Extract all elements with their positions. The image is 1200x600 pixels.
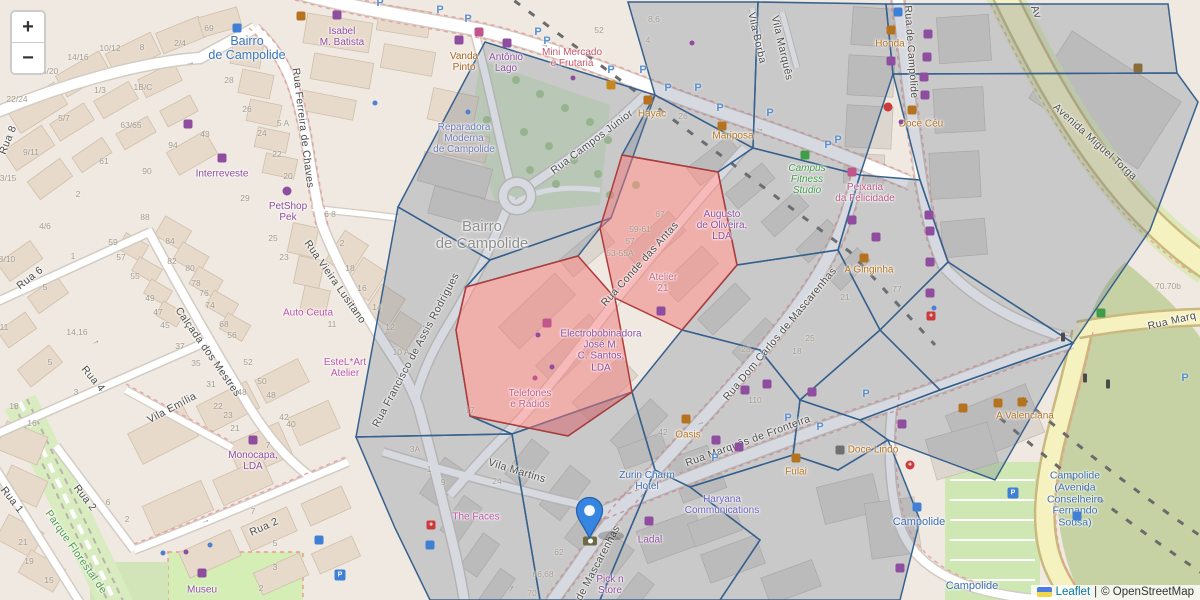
street-label: Vila Marquês — [769, 15, 796, 82]
parking-icon: P — [607, 64, 614, 76]
map-canvas[interactable]: Rua 8Rua Ferreira de ChavesRua Vieira Lu… — [0, 0, 1200, 600]
cutlery-icon — [682, 415, 691, 424]
house-number: 25 — [805, 333, 814, 343]
traffic-light-icon — [1061, 333, 1065, 342]
shop-icon — [741, 386, 750, 395]
fitness-runner-icon — [801, 151, 810, 160]
house-number: 82 — [167, 256, 176, 266]
house-number: 1B/C — [134, 82, 153, 92]
poi-dot — [533, 376, 538, 381]
traffic-light-icon — [1083, 374, 1087, 383]
attribution-separator: | — [1094, 586, 1097, 598]
cutlery-icon — [994, 399, 1003, 408]
house-number: 76 — [199, 288, 208, 298]
house-number: 19 — [24, 556, 33, 566]
house-number: 28 — [224, 75, 233, 85]
house-number: 26 — [242, 104, 251, 114]
bakery-icon — [872, 233, 881, 242]
shop-icon — [923, 53, 932, 62]
map-marker[interactable] — [575, 496, 633, 545]
street-label: Vila Martins — [487, 457, 547, 486]
house-number: 17 — [465, 405, 474, 415]
oneway-arrow: → — [694, 416, 706, 428]
luggage-icon — [926, 289, 935, 298]
poi-label: HaryanaCommunications — [685, 494, 759, 516]
parking-square-icon: P — [335, 570, 346, 581]
house-number: 1/3 — [94, 85, 106, 95]
clothes-icon — [718, 122, 727, 131]
house-number: 4/6 — [39, 221, 51, 231]
street-label: Vila Borba — [745, 11, 768, 65]
parking-icon: P — [543, 35, 550, 47]
house-number: 2 — [125, 514, 130, 524]
crossing-dot — [208, 543, 213, 548]
street-label: Rua 6 — [14, 264, 45, 292]
oneway-arrow: → — [539, 38, 550, 50]
parking-icon: P — [639, 64, 646, 76]
house-number: 8,6 — [648, 14, 660, 24]
poi-label: Atelier21 — [649, 272, 677, 294]
house-number: 48 — [237, 387, 246, 397]
crossing-dot — [161, 551, 166, 556]
parking-icon: P — [824, 139, 831, 151]
poi-label: ElectrobobinadoraJosé M.C. Santos,LDA — [560, 329, 641, 374]
house-number: 84 — [165, 236, 174, 246]
house-number: 45 — [160, 320, 169, 330]
house-number: 31 — [206, 379, 215, 389]
cocktail-icon — [475, 28, 484, 37]
oneway-arrow: → — [754, 122, 766, 134]
poi-label: Bairrode Campolide — [208, 34, 285, 62]
house-number: 3 — [74, 387, 79, 397]
parking-icon: P — [1181, 372, 1188, 384]
house-number: 5/7 — [58, 113, 70, 123]
house-number: 3/15 — [0, 173, 16, 183]
parking-icon: P — [534, 26, 541, 38]
house-number: 28 — [741, 344, 750, 354]
street-label: Rua 4 — [79, 364, 107, 395]
crown-icon — [184, 120, 193, 129]
poi-label: Peixariada Felicidade — [835, 182, 894, 204]
house-number: 6 — [106, 497, 111, 507]
poi-label: Campolide(AvenidaConselheiroFernandoSous… — [1047, 471, 1103, 530]
parking-icon: P — [376, 0, 383, 9]
house-number: 49 — [145, 293, 154, 303]
house-number: 22 — [272, 149, 281, 159]
parking-icon: P — [664, 82, 671, 94]
zoom-in-button[interactable]: + — [12, 12, 44, 43]
house-number: 77 — [892, 284, 901, 294]
poi-label: Telefonese Rádios — [509, 388, 552, 410]
parking-icon: P — [436, 4, 443, 16]
house-number: 9/11 — [23, 147, 39, 157]
osm-attribution: © OpenStreetMap — [1101, 586, 1194, 598]
house-number: 52 — [594, 25, 603, 35]
poi-dot — [571, 76, 576, 81]
car-shop-icon — [657, 307, 666, 316]
house-number: 23 — [279, 252, 288, 262]
poi-label: ReparadoraModernade Campolide — [433, 122, 495, 156]
house-number: 63/65 — [120, 120, 141, 130]
house-number: 42 — [658, 427, 667, 437]
crossing-dot — [466, 110, 471, 115]
house-number: 69 — [204, 23, 213, 33]
poi-dot — [536, 333, 541, 338]
poi-label: EsteL*ArtAtelier — [324, 357, 366, 379]
train-station-icon — [913, 503, 922, 512]
cart-icon — [924, 30, 933, 39]
house-number: 29 — [240, 193, 249, 203]
parking-icon: P — [694, 82, 701, 94]
crossing-dot — [184, 550, 189, 555]
parking-icon: P — [862, 388, 869, 400]
house-number: 16 — [27, 418, 36, 428]
parking-icon: P — [766, 107, 773, 119]
house-number: 90 — [142, 166, 151, 176]
poi-label: PetShopPek — [269, 201, 307, 223]
poi-label: Mini Mercadoe Frutaria — [542, 47, 602, 69]
street-label: Rua Marquês de Fronteira — [684, 413, 812, 469]
church-icon — [896, 564, 905, 573]
street-label: Rua 8 — [0, 124, 19, 156]
house-number: 6 8 — [324, 209, 336, 219]
house-number: 7 — [251, 506, 256, 516]
poi-label: Doce Céu — [899, 118, 943, 129]
street-label: Vila Emília — [145, 390, 198, 426]
house-number: 57 — [116, 252, 125, 262]
house-number: 110 — [748, 395, 762, 405]
florist-icon — [921, 91, 930, 100]
house-number: 14 — [372, 302, 381, 312]
pedestrian-icon — [1097, 309, 1106, 318]
bus-stop-icon — [894, 8, 903, 17]
cafe-cup-icon — [908, 106, 917, 115]
restaurant-icon — [644, 96, 653, 105]
vet-paw-icon — [884, 103, 893, 112]
house-number: 18 — [345, 263, 354, 273]
ukraine-flag-icon — [1037, 587, 1052, 597]
street-label: Rua 1 — [0, 484, 26, 515]
poi-dot — [899, 120, 904, 125]
house-number: 16 — [357, 283, 366, 293]
poi-label: AntônioLago — [489, 52, 523, 74]
shop-icon — [808, 388, 817, 397]
house-number: 80 — [185, 263, 194, 273]
oneway-arrow: → — [185, 56, 196, 68]
optician-icon — [898, 420, 907, 429]
poi-label: Hayac — [638, 108, 666, 119]
house-number: 1 — [71, 251, 76, 261]
house-number: 3A — [410, 444, 420, 454]
house-number: 3 — [273, 562, 278, 572]
house-number: 68 — [219, 319, 228, 329]
poi-label: Interreveste — [196, 168, 249, 179]
bus-stop-icon — [426, 541, 435, 550]
house-number: 10 A — [392, 347, 409, 357]
poi-label: Museu — [187, 584, 217, 595]
house-number: 42 — [279, 412, 288, 422]
bus-stop-icon — [233, 24, 242, 33]
jewelry-icon — [503, 39, 512, 48]
cafe-cup-icon — [297, 12, 306, 21]
house-number: 5 — [43, 282, 48, 292]
house-number: 8 — [140, 42, 145, 52]
poi-label: Pick nStore — [596, 574, 623, 596]
house-number: 9 — [441, 477, 446, 487]
motorcycle-icon — [887, 26, 896, 35]
house-number: 11 — [0, 322, 8, 332]
house-number: 78 — [191, 278, 200, 288]
house-number: 61 — [99, 156, 108, 166]
house-number: 50 — [257, 376, 266, 386]
house-number: 21 — [18, 537, 27, 547]
street-label: Rua 2 — [71, 482, 99, 513]
luggage-icon — [926, 227, 935, 236]
street-label: Rua Vieira Lusitano — [302, 238, 369, 326]
crossing-dot — [373, 101, 378, 106]
people-icon — [218, 154, 227, 163]
house-number: 5 A — [277, 118, 289, 128]
house-number: 4 — [646, 35, 651, 45]
street-label: Rua 2 — [248, 515, 280, 538]
parking-icon: P — [716, 102, 723, 114]
poi-label: IsabelM. Batista — [320, 26, 364, 48]
house-number: 59 — [108, 237, 117, 247]
street-label: Calçada dos Mestres — [173, 305, 244, 399]
poi-label: Campolide — [946, 580, 999, 592]
crown-icon — [925, 211, 934, 220]
poi-label: Mariposa — [712, 130, 753, 141]
poi-label: Augustode Oliveira,LDA — [697, 209, 748, 243]
leaflet-link[interactable]: Leaflet — [1056, 586, 1091, 598]
bike-parking-icon — [1073, 512, 1082, 521]
house-number: 2 — [76, 189, 81, 199]
paw-icon — [283, 187, 292, 196]
parking-icon: P — [711, 452, 718, 464]
scissors-icon — [920, 73, 929, 82]
house-number: 47 — [153, 307, 162, 317]
zoom-control: + − — [10, 10, 46, 75]
house-number: 22/24 — [6, 94, 27, 104]
house-number: 25 — [268, 233, 277, 243]
house-number: 21 — [230, 423, 239, 433]
fish-icon — [848, 168, 857, 177]
taxi-icon — [836, 446, 845, 455]
house-number: 5 — [273, 538, 278, 548]
house-number: 35 — [191, 358, 200, 368]
house-number: 15 — [44, 575, 53, 585]
house-number: 48 — [266, 390, 275, 400]
factory-icon — [887, 57, 896, 66]
poi-label: Campolide — [893, 516, 946, 528]
bus-stop-icon — [315, 536, 324, 545]
street-label: Rua Conde das Antas — [599, 219, 681, 309]
shop-icon — [735, 443, 744, 452]
street-label: Rua Campos Júnior — [549, 107, 636, 177]
house-number: 70.70b — [1155, 281, 1181, 291]
poi-label: Oasis — [675, 429, 701, 440]
poi-label: CampusFitnessStudio — [788, 163, 825, 197]
poi-label: VandaPinto — [450, 51, 478, 73]
house-number: 21 — [840, 292, 849, 302]
attribution-bar: Leaflet | © OpenStreetMap — [1031, 585, 1200, 600]
parking-icon: P — [816, 421, 823, 433]
poi-label: Honda — [875, 38, 904, 49]
oneway-arrow: → — [199, 514, 211, 527]
books-icon — [848, 216, 857, 225]
monument-icon — [1134, 64, 1143, 73]
house-number: 62 — [554, 547, 563, 557]
street-label: Rua Ferreira de Chaves — [290, 67, 317, 188]
poi-label: Zurin CharmHotel — [619, 470, 675, 492]
trophy-icon — [959, 404, 968, 413]
street-label: Rua de Campolide — [902, 5, 920, 99]
clothes-icon — [333, 11, 342, 20]
house-number: 20 — [283, 171, 292, 181]
hotel-bed-icon — [543, 319, 552, 328]
house-number: 23 — [223, 410, 232, 420]
street-label: Rua Dom Carlos de Mascarenhas — [721, 265, 839, 403]
house-number: 66,68 — [532, 569, 553, 579]
oneway-arrow: → — [89, 335, 101, 348]
house-number: 22 — [213, 401, 222, 411]
house-number: 24 — [257, 128, 266, 138]
house-number: 56 — [227, 330, 236, 340]
crown-icon — [926, 258, 935, 267]
poi-label: The Faces — [452, 511, 499, 522]
house-number: 18 — [9, 401, 18, 411]
oneway-arrow: → — [504, 582, 517, 594]
street-label: Parque Florestal de — [43, 508, 110, 596]
zoom-out-button[interactable]: − — [12, 43, 44, 73]
house-number: 14,16 — [66, 327, 87, 337]
cafe-cup-icon — [860, 254, 869, 263]
parking-icon: P — [834, 134, 841, 146]
house-number: 88 — [140, 212, 149, 222]
house-number: 59-61 — [629, 224, 651, 234]
basket-icon — [607, 81, 616, 90]
traffic-light-icon — [1106, 380, 1110, 389]
shop-icon — [712, 436, 721, 445]
poi-label: Auto Ceuta — [283, 307, 333, 318]
firstaid-icon: + — [927, 312, 936, 321]
house-number: 5 — [48, 357, 53, 367]
house-number: 14/16 — [67, 52, 88, 62]
house-number: 52 — [243, 357, 252, 367]
house-number: 26 — [678, 111, 687, 121]
parking-icon: P — [784, 412, 791, 424]
museum-icon — [198, 569, 207, 578]
street-label: Avenida Miguel Torga — [1051, 101, 1140, 183]
house-number: 24 — [492, 476, 501, 486]
house-number: 53-55A — [606, 248, 633, 258]
poi-dot — [550, 365, 555, 370]
hospital-icon: + — [906, 461, 915, 470]
house-number: 43 — [200, 129, 209, 139]
parking-icon: P — [464, 13, 471, 25]
parking-square-icon: P — [1008, 488, 1019, 499]
poi-label: Monocapa,LDA — [228, 450, 277, 472]
poi-label: Bairrode Campolide — [436, 219, 529, 253]
cutlery-icon — [792, 454, 801, 463]
street-label: Rua Francisco de Assis Rodrigues — [370, 271, 462, 430]
shop-icon — [249, 436, 258, 445]
house-number: 2/4 — [174, 38, 186, 48]
poi-label: Ladal — [638, 534, 662, 545]
house-number: 74 — [205, 300, 214, 310]
tools-icon — [645, 517, 654, 526]
house-number: 67 — [655, 209, 664, 219]
poi-dot — [690, 41, 695, 46]
house-number: 11 — [328, 319, 337, 329]
house-number: 7 — [266, 440, 271, 450]
street-label: Rua Marq — [1147, 310, 1198, 333]
house-number: 94 — [168, 140, 177, 150]
house-number: 12 — [385, 322, 394, 332]
house-number: 1 — [427, 464, 432, 474]
house-number: 18 — [792, 346, 801, 356]
cutlery-icon — [1018, 398, 1027, 407]
house-number: 57 — [625, 236, 634, 246]
laundry-icon — [455, 36, 464, 45]
poi-label: Fulai — [785, 466, 807, 477]
poi-label: A Ginginha — [845, 264, 894, 275]
shop-icon — [763, 380, 772, 389]
pharmacy-icon: + — [427, 521, 436, 530]
poi-label: Doce Lindo — [848, 444, 899, 455]
poi-dot — [932, 306, 937, 311]
house-number: 40 — [286, 419, 295, 429]
house-number: 8/10 — [0, 254, 15, 264]
house-number: 2 — [259, 583, 264, 593]
poi-label: A Valenciana — [996, 410, 1054, 421]
street-label: Av — [1028, 4, 1044, 20]
house-number: 10/12 — [99, 43, 120, 53]
house-number: 55 — [130, 271, 139, 281]
house-number: 2 — [340, 238, 345, 248]
house-number: 70 — [527, 588, 536, 598]
house-number: 37 — [175, 341, 184, 351]
